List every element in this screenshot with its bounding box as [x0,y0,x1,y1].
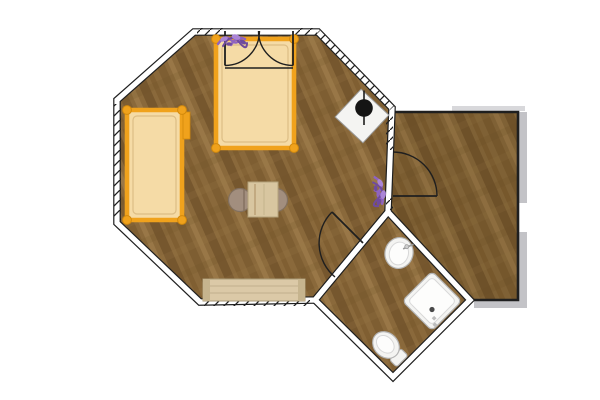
floor-plan-canvas [0,0,600,400]
window-left-wall[interactable] [114,104,121,220]
window-top-right[interactable] [295,28,317,35]
rug[interactable] [203,279,305,301]
window-right-lower[interactable] [386,198,393,210]
dining-table[interactable] [248,182,278,217]
window-top-left[interactable] [197,28,223,35]
single-bed[interactable] [123,106,190,225]
floor-plan-drawing [0,0,600,400]
window-right-upper[interactable] [386,114,393,150]
